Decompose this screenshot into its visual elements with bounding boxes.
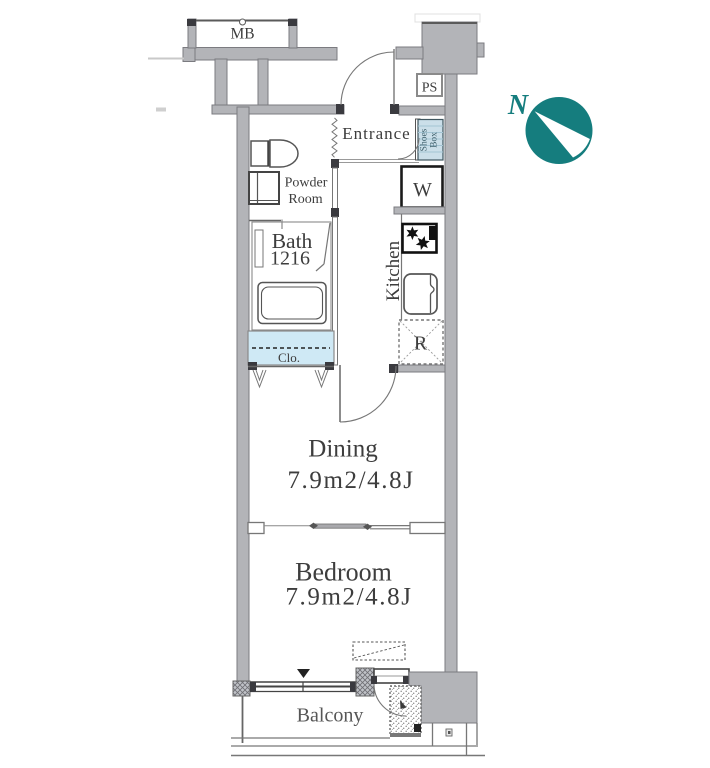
- svg-text:W: W: [413, 179, 432, 201]
- svg-text:Clo.: Clo.: [278, 350, 300, 365]
- svg-text:7.9m2/4.8J: 7.9m2/4.8J: [287, 467, 414, 494]
- svg-text:R: R: [414, 333, 428, 355]
- svg-text:7.9m2/4.8J: 7.9m2/4.8J: [285, 584, 412, 611]
- svg-text:Dining: Dining: [308, 436, 378, 463]
- svg-text:Kitchen: Kitchen: [383, 240, 404, 301]
- svg-text:Balcony: Balcony: [297, 705, 364, 727]
- svg-text:Bedroom: Bedroom: [295, 558, 392, 587]
- svg-text:Shoes: Shoes: [420, 128, 430, 151]
- svg-text:Powder: Powder: [285, 176, 328, 191]
- svg-text:1216: 1216: [270, 248, 310, 270]
- svg-text:N: N: [507, 90, 530, 121]
- svg-text:Box: Box: [430, 132, 440, 148]
- svg-text:PS: PS: [422, 81, 438, 96]
- svg-text:Room: Room: [288, 192, 322, 207]
- svg-text:MB: MB: [230, 26, 254, 43]
- svg-text:Entrance: Entrance: [342, 124, 410, 143]
